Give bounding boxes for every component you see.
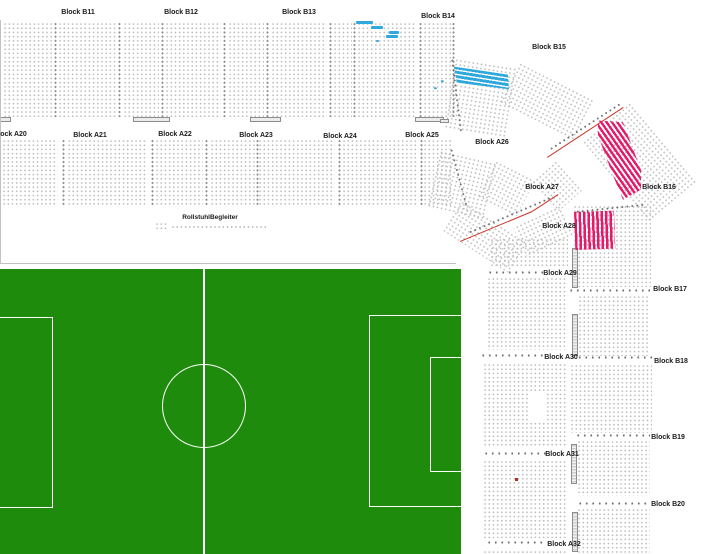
aisle-dots: [223, 22, 226, 117]
block-label-b17: Block B17: [653, 286, 687, 293]
selected-seats-cyan-b14[interactable]: [371, 26, 383, 29]
platform: [133, 117, 170, 122]
aisle-row-dots: [577, 502, 650, 505]
block-label-a25: Block A25: [405, 132, 439, 139]
seat-block-b19[interactable]: [577, 440, 650, 496]
seat-block-b13-left[interactable]: [228, 22, 264, 117]
entrance-gap-a30: [530, 393, 546, 421]
seat-block-a21[interactable]: [67, 139, 148, 207]
seat-block-a29[interactable]: [487, 277, 568, 350]
aisle-dots: [151, 139, 154, 207]
block-label-b16: Block B16: [642, 184, 676, 191]
block-label-b20: Block B20: [651, 501, 685, 508]
aisle-dots: [329, 22, 332, 117]
seat-block-b11-right[interactable]: [58, 22, 116, 117]
seat-block-a24[interactable]: [258, 139, 335, 207]
aisle-row-dots: [483, 452, 547, 455]
aisle-dots: [161, 22, 164, 117]
seat-block-a22[interactable]: [155, 139, 203, 207]
pitch-center-circle: [162, 364, 246, 448]
block-label-b11: Block B11: [61, 9, 94, 16]
block-label-a27: Block A27: [525, 184, 559, 191]
selected-seat-cyan-b15[interactable]: [434, 87, 437, 89]
seat-block-a23[interactable]: [210, 139, 255, 207]
aisle-dots: [353, 22, 356, 117]
block-label-b18: Block B18: [654, 358, 688, 365]
wheelchair-companion-label: RollstuhlBegleiter: [182, 215, 238, 222]
seat-block-a31[interactable]: [483, 460, 566, 538]
aisle-dots: [420, 139, 423, 207]
seat-block-b13-edge[interactable]: [333, 22, 352, 117]
platform: [440, 119, 449, 123]
stairway: [572, 314, 578, 356]
aisle-row-dots: [480, 354, 546, 357]
selected-seats-pink-a28[interactable]: [574, 211, 615, 250]
block-label-a23: Block A23: [239, 132, 273, 139]
seat-block-b11-left[interactable]: [3, 22, 52, 117]
aisle-dots: [118, 22, 121, 117]
block-label-b13: Block B13: [282, 9, 316, 16]
block-label-a24: Block A24: [323, 133, 357, 140]
aisle-row-dots: [486, 541, 546, 544]
platform: [0, 117, 11, 122]
seat-block-a25[interactable]: [342, 139, 418, 207]
block-label-a20: Block A20: [0, 131, 27, 138]
selected-seats-cyan-b14[interactable]: [376, 40, 379, 42]
selected-seats-cyan-b14[interactable]: [386, 35, 398, 38]
block-label-b19: Block B19: [651, 434, 685, 441]
stairway: [571, 444, 577, 484]
stand-left-edge-line: [0, 20, 1, 263]
aisle-dots: [54, 22, 57, 117]
selected-seats-cyan-b14[interactable]: [389, 31, 399, 34]
seat-block-b18[interactable]: [570, 364, 652, 433]
aisle-row-dots: [568, 289, 652, 292]
block-label-b14: Block B14: [421, 13, 455, 20]
block-label-a28: Block A28: [542, 223, 576, 230]
wheelchair-companion-seats[interactable]: [171, 225, 268, 229]
stairway: [572, 248, 578, 288]
seat-block-b12-left[interactable]: [123, 22, 159, 117]
seat-block-a30[interactable]: [483, 363, 568, 448]
tier-edge-line: [0, 263, 456, 264]
block-label-a29: Block A29: [543, 270, 577, 277]
seat-block-b12-right[interactable]: [165, 22, 221, 117]
block-label-a22: Block A22: [158, 131, 192, 138]
seat-block-a20[interactable]: [2, 139, 58, 207]
wheelchair-companion-cluster[interactable]: [155, 222, 168, 230]
selected-seat-cyan-b15[interactable]: [441, 80, 444, 82]
football-pitch: [0, 269, 461, 554]
block-label-b12: Block B12: [164, 9, 198, 16]
aisle-dots: [266, 22, 269, 117]
aisle-dots: [256, 139, 259, 207]
seat-block-b20[interactable]: [577, 508, 650, 554]
pitch-left-penalty-box: [0, 317, 53, 508]
aisle-row-dots: [575, 434, 650, 437]
block-label-a30: Block A30: [544, 354, 578, 361]
block-label-a26: Block A26: [475, 139, 509, 146]
selected-seats-cyan-b14[interactable]: [356, 21, 373, 24]
aisle-dots: [419, 22, 422, 117]
aisle-dots: [338, 139, 341, 207]
pitch-right-goal-box: [430, 357, 461, 472]
seat-block-b13-right[interactable]: [271, 22, 327, 117]
aisle-row-dots: [570, 356, 652, 359]
aisle-dots: [205, 139, 208, 207]
aisle-dots: [62, 139, 65, 207]
block-label-a31: Block A31: [545, 451, 579, 458]
seat-block-a32[interactable]: [483, 550, 566, 554]
selected-seat-red-a31[interactable]: [515, 478, 518, 481]
seat-block-b17[interactable]: [578, 295, 650, 356]
block-label-a32: Block A32: [547, 541, 581, 548]
aisle-row-dots: [487, 271, 547, 274]
block-label-a21: Block A21: [73, 132, 107, 139]
seat-block-a29-upper[interactable]: [490, 238, 568, 268]
platform: [250, 117, 281, 122]
block-label-b15: Block B15: [532, 44, 566, 51]
stadium-seat-map: Block B11 Block B12 Block B13 Block B14 …: [0, 0, 724, 554]
